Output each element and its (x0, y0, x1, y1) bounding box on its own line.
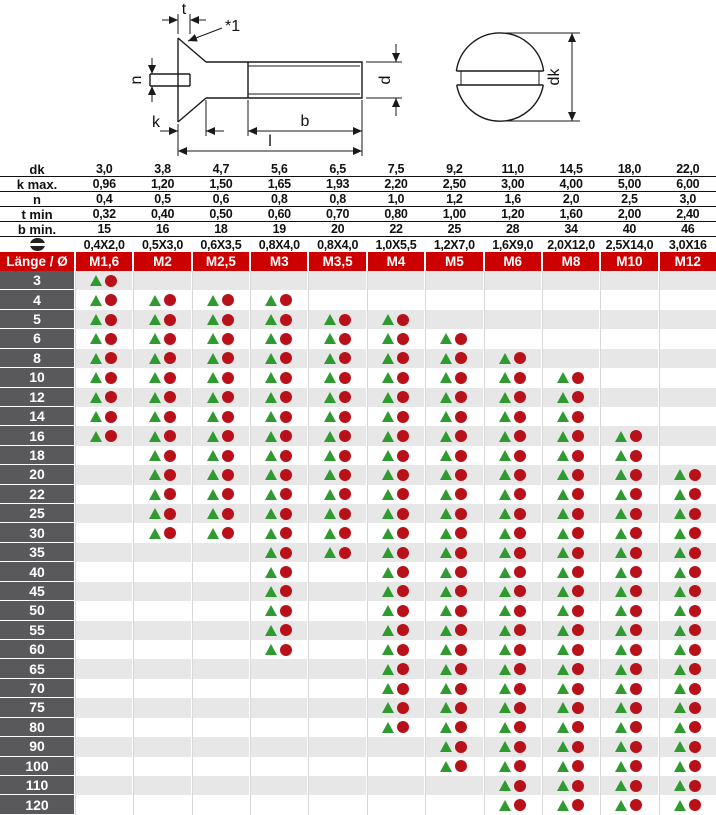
spec-value-b-min-M5: 25 (426, 222, 482, 236)
available-circle (514, 450, 526, 462)
cell-8-M2,5 (192, 349, 249, 368)
cell-120-M10 (600, 795, 657, 814)
cell-8-M2 (133, 349, 190, 368)
available-triangle (557, 392, 569, 403)
available-circle (280, 352, 292, 364)
available-circle (280, 585, 292, 597)
spec-value-dk-M6: 11,0 (485, 162, 541, 176)
cell-16-M6 (484, 426, 541, 445)
available-triangle (674, 683, 686, 694)
available-triangle (265, 528, 277, 539)
available-circle (455, 508, 467, 520)
spec-row-slot: 0,4X2,00,5X3,00,6X3,50,8X4,00,8X4,01,0X5… (0, 237, 716, 252)
dim-label-note1: *1 (225, 18, 240, 35)
cell-35-M5 (425, 543, 482, 562)
available-circle (164, 469, 176, 481)
spec-value-n-M10: 2,5 (601, 192, 657, 206)
cell-40-M4 (367, 562, 424, 581)
available-circle (572, 683, 584, 695)
technical-drawing: t *1 n k b (0, 0, 716, 162)
table-row-length-45: 45 (0, 582, 716, 601)
cell-80-M2,5 (192, 718, 249, 737)
spec-value-slot-M1,6: 0,4X2,0 (76, 237, 132, 252)
available-circle (514, 372, 526, 384)
available-triangle (149, 333, 161, 344)
available-triangle (265, 314, 277, 325)
available-circle (455, 566, 467, 578)
spec-value-t-min-M3,5: 0,70 (309, 207, 365, 221)
length-label-80: 80 (0, 718, 74, 737)
table-row-length-4: 4 (0, 290, 716, 309)
cell-5-M6 (484, 310, 541, 329)
available-triangle (499, 761, 511, 772)
cell-120-M4 (367, 795, 424, 814)
spec-value-b-min-M3,5: 20 (309, 222, 365, 236)
cell-30-M3 (250, 523, 307, 542)
cell-16-M1,6 (75, 426, 132, 445)
dim-label-k: k (152, 114, 161, 131)
available-circle (689, 663, 701, 675)
length-label-3: 3 (0, 271, 74, 290)
cell-4-M3,5 (308, 290, 365, 309)
cell-12-M8 (542, 388, 599, 407)
available-circle (514, 721, 526, 733)
available-triangle (615, 683, 627, 694)
available-circle (455, 547, 467, 559)
cell-100-M1,6 (75, 757, 132, 776)
cell-55-M6 (484, 621, 541, 640)
available-circle (280, 527, 292, 539)
cell-80-M4 (367, 718, 424, 737)
available-triangle (149, 392, 161, 403)
cell-30-M8 (542, 523, 599, 542)
available-triangle (557, 722, 569, 733)
available-triangle (440, 411, 452, 422)
cell-4-M1,6 (75, 290, 132, 309)
spec-value-k-max-M1,6: 0,96 (76, 177, 132, 191)
available-triangle (615, 761, 627, 772)
available-triangle (557, 664, 569, 675)
cell-20-M10 (600, 465, 657, 484)
cell-12-M3 (250, 388, 307, 407)
available-triangle (499, 702, 511, 713)
available-circle (339, 372, 351, 384)
spec-value-k-max-M2,5: 1,50 (193, 177, 249, 191)
available-circle (397, 372, 409, 384)
available-triangle (265, 567, 277, 578)
available-circle (572, 527, 584, 539)
cell-8-M5 (425, 349, 482, 368)
available-triangle (615, 722, 627, 733)
available-triangle (440, 508, 452, 519)
available-triangle (557, 683, 569, 694)
cell-40-M2 (133, 562, 190, 581)
spec-value-k-max-M3: 1,65 (251, 177, 307, 191)
available-circle (514, 585, 526, 597)
available-circle (689, 644, 701, 656)
available-triangle (149, 469, 161, 480)
available-triangle (382, 528, 394, 539)
available-triangle (557, 547, 569, 558)
available-triangle (499, 431, 511, 442)
available-triangle (90, 275, 102, 286)
available-circle (280, 314, 292, 326)
cell-22-M4 (367, 485, 424, 504)
spec-value-n-M2,5: 0,6 (193, 192, 249, 206)
cell-45-M10 (600, 582, 657, 601)
available-circle (339, 488, 351, 500)
cell-25-M5 (425, 504, 482, 523)
cell-110-M12 (659, 776, 716, 795)
cell-55-M10 (600, 621, 657, 640)
available-circle (572, 547, 584, 559)
cell-14-M12 (659, 407, 716, 426)
cell-10-M2 (133, 368, 190, 387)
spec-value-dk-M3: 5,6 (251, 162, 307, 176)
cell-6-M10 (600, 329, 657, 348)
spec-value-n-M8: 2,0 (543, 192, 599, 206)
cell-100-M2 (133, 757, 190, 776)
available-triangle (265, 411, 277, 422)
available-circle (514, 799, 526, 811)
cell-20-M4 (367, 465, 424, 484)
available-circle (689, 488, 701, 500)
available-circle (514, 683, 526, 695)
available-triangle (207, 508, 219, 519)
cell-35-M3,5 (308, 543, 365, 562)
cell-60-M6 (484, 640, 541, 659)
available-triangle (440, 702, 452, 713)
slot-screw-icon (30, 238, 45, 251)
cell-35-M6 (484, 543, 541, 562)
available-triangle (674, 741, 686, 752)
available-circle (630, 605, 642, 617)
available-circle (572, 644, 584, 656)
cell-25-M3,5 (308, 504, 365, 523)
size-header-M3: M3 (251, 252, 307, 271)
available-circle (105, 391, 117, 403)
cell-65-M12 (659, 659, 716, 678)
cell-18-M2 (133, 446, 190, 465)
table-row-length-30: 30 (0, 523, 716, 542)
cell-3-M3 (250, 271, 307, 290)
cell-70-M5 (425, 679, 482, 698)
available-triangle (382, 722, 394, 733)
spec-value-dk-M1,6: 3,0 (76, 162, 132, 176)
available-circle (280, 333, 292, 345)
cell-50-M2,5 (192, 601, 249, 620)
available-circle (455, 488, 467, 500)
table-row-length-12: 12 (0, 388, 716, 407)
available-triangle (324, 392, 336, 403)
cell-12-M2 (133, 388, 190, 407)
spec-value-t-min-M8: 1,60 (543, 207, 599, 221)
cell-30-M4 (367, 523, 424, 542)
spec-value-n-M4: 1,0 (368, 192, 424, 206)
cell-50-M3,5 (308, 601, 365, 620)
cell-75-M4 (367, 698, 424, 717)
available-triangle (615, 528, 627, 539)
available-circle (572, 450, 584, 462)
available-triangle (324, 489, 336, 500)
cell-6-M5 (425, 329, 482, 348)
length-label-120: 120 (0, 795, 74, 814)
cell-75-M12 (659, 698, 716, 717)
available-circle (455, 352, 467, 364)
available-circle (397, 624, 409, 636)
cell-3-M1,6 (75, 271, 132, 290)
available-triangle (557, 605, 569, 616)
available-triangle (382, 392, 394, 403)
cell-5-M1,6 (75, 310, 132, 329)
available-triangle (499, 450, 511, 461)
cell-75-M3 (250, 698, 307, 717)
available-triangle (324, 411, 336, 422)
available-circle (397, 683, 409, 695)
available-triangle (499, 392, 511, 403)
cell-3-M4 (367, 271, 424, 290)
length-label-12: 12 (0, 388, 74, 407)
cell-6-M4 (367, 329, 424, 348)
available-circle (339, 450, 351, 462)
available-triangle (440, 469, 452, 480)
cell-30-M10 (600, 523, 657, 542)
available-triangle (615, 508, 627, 519)
available-circle (280, 566, 292, 578)
cell-55-M3,5 (308, 621, 365, 640)
cell-40-M6 (484, 562, 541, 581)
cell-120-M3,5 (308, 795, 365, 814)
spec-row-label-b-min: b min. (0, 222, 74, 236)
cell-16-M12 (659, 426, 716, 445)
available-triangle (382, 508, 394, 519)
cell-4-M4 (367, 290, 424, 309)
available-triangle (324, 353, 336, 364)
cell-18-M4 (367, 446, 424, 465)
dim-label-l: l (268, 133, 272, 150)
cell-30-M5 (425, 523, 482, 542)
cell-8-M3 (250, 349, 307, 368)
available-circle (689, 585, 701, 597)
available-triangle (382, 372, 394, 383)
cell-40-M12 (659, 562, 716, 581)
spec-value-dk-M2,5: 4,7 (193, 162, 249, 176)
available-triangle (382, 431, 394, 442)
spec-value-k-max-M10: 5,00 (601, 177, 657, 191)
available-triangle (440, 547, 452, 558)
cell-45-M2,5 (192, 582, 249, 601)
cell-40-M3,5 (308, 562, 365, 581)
cell-25-M12 (659, 504, 716, 523)
dim-label-n: n (128, 76, 145, 85)
cell-110-M5 (425, 776, 482, 795)
cell-55-M2 (133, 621, 190, 640)
cell-35-M2 (133, 543, 190, 562)
table-row-length-18: 18 (0, 446, 716, 465)
available-triangle (557, 761, 569, 772)
spec-value-b-min-M2,5: 18 (193, 222, 249, 236)
cell-70-M4 (367, 679, 424, 698)
cell-70-M2 (133, 679, 190, 698)
available-triangle (90, 353, 102, 364)
available-circle (164, 333, 176, 345)
available-triangle (615, 644, 627, 655)
cell-65-M10 (600, 659, 657, 678)
length-label-22: 22 (0, 485, 74, 504)
available-circle (572, 508, 584, 520)
available-circle (572, 799, 584, 811)
cell-8-M6 (484, 349, 541, 368)
cell-80-M5 (425, 718, 482, 737)
spec-row-label-k-max: k max. (0, 177, 74, 191)
available-triangle (440, 683, 452, 694)
available-triangle (499, 780, 511, 791)
cell-80-M8 (542, 718, 599, 737)
table-row-length-16: 16 (0, 426, 716, 445)
length-label-75: 75 (0, 698, 74, 717)
available-circle (455, 605, 467, 617)
cell-90-M8 (542, 737, 599, 756)
available-circle (572, 624, 584, 636)
cell-5-M5 (425, 310, 482, 329)
cell-10-M3,5 (308, 368, 365, 387)
available-triangle (382, 664, 394, 675)
cell-100-M12 (659, 757, 716, 776)
available-circle (397, 508, 409, 520)
cell-90-M6 (484, 737, 541, 756)
cell-10-M12 (659, 368, 716, 387)
cell-12-M12 (659, 388, 716, 407)
available-triangle (265, 450, 277, 461)
cell-50-M4 (367, 601, 424, 620)
cell-35-M12 (659, 543, 716, 562)
available-circle (397, 644, 409, 656)
size-header-M4: M4 (368, 252, 424, 271)
available-triangle (615, 450, 627, 461)
available-circle (222, 488, 234, 500)
available-circle (105, 411, 117, 423)
cell-5-M4 (367, 310, 424, 329)
available-circle (572, 372, 584, 384)
available-triangle (499, 800, 511, 811)
available-circle (455, 391, 467, 403)
cell-80-M10 (600, 718, 657, 737)
cell-60-M3 (250, 640, 307, 659)
cell-60-M4 (367, 640, 424, 659)
cell-120-M12 (659, 795, 716, 814)
available-triangle (207, 431, 219, 442)
available-circle (630, 585, 642, 597)
available-circle (689, 508, 701, 520)
cell-65-M6 (484, 659, 541, 678)
cell-20-M8 (542, 465, 599, 484)
available-circle (280, 488, 292, 500)
cell-75-M2,5 (192, 698, 249, 717)
available-circle (222, 411, 234, 423)
available-circle (689, 760, 701, 772)
available-circle (397, 721, 409, 733)
available-triangle (674, 469, 686, 480)
available-circle (689, 547, 701, 559)
available-circle (689, 624, 701, 636)
available-circle (222, 430, 234, 442)
available-triangle (324, 333, 336, 344)
cell-65-M2 (133, 659, 190, 678)
cell-16-M8 (542, 426, 599, 445)
available-triangle (207, 411, 219, 422)
cell-40-M2,5 (192, 562, 249, 581)
spec-value-slot-M5: 1,2X7,0 (426, 237, 482, 252)
available-triangle (440, 567, 452, 578)
spec-value-t-min-M2: 0,40 (134, 207, 190, 221)
available-triangle (499, 508, 511, 519)
available-circle (630, 469, 642, 481)
cell-50-M8 (542, 601, 599, 620)
available-triangle (557, 586, 569, 597)
cell-25-M10 (600, 504, 657, 523)
spec-value-slot-M4: 1,0X5,5 (368, 237, 424, 252)
cell-3-M2 (133, 271, 190, 290)
available-triangle (615, 800, 627, 811)
cell-10-M6 (484, 368, 541, 387)
cell-4-M6 (484, 290, 541, 309)
cell-75-M10 (600, 698, 657, 717)
available-circle (572, 605, 584, 617)
available-circle (164, 352, 176, 364)
cell-4-M5 (425, 290, 482, 309)
available-triangle (674, 528, 686, 539)
available-triangle (674, 800, 686, 811)
available-circle (222, 450, 234, 462)
available-circle (514, 644, 526, 656)
available-triangle (440, 431, 452, 442)
available-circle (164, 314, 176, 326)
size-header-M1,6: M1,6 (76, 252, 132, 271)
spec-value-k-max-M6: 3,00 (485, 177, 541, 191)
available-triangle (265, 392, 277, 403)
available-triangle (440, 644, 452, 655)
cell-40-M5 (425, 562, 482, 581)
spec-row-label-dk: dk (0, 162, 74, 176)
size-header-M8: M8 (543, 252, 599, 271)
available-triangle (615, 469, 627, 480)
length-label-30: 30 (0, 523, 74, 542)
length-diameter-header: Länge / Ø (0, 252, 74, 271)
available-circle (689, 799, 701, 811)
available-circle (397, 333, 409, 345)
available-circle (164, 430, 176, 442)
available-circle (514, 469, 526, 481)
available-triangle (265, 605, 277, 616)
available-circle (514, 702, 526, 714)
spec-row-label-n: n (0, 192, 74, 206)
cell-6-M3,5 (308, 329, 365, 348)
available-triangle (674, 625, 686, 636)
spec-value-k-max-M5: 2,50 (426, 177, 482, 191)
available-circle (514, 430, 526, 442)
cell-50-M12 (659, 601, 716, 620)
available-circle (339, 469, 351, 481)
cell-100-M2,5 (192, 757, 249, 776)
available-circle (339, 391, 351, 403)
available-circle (339, 508, 351, 520)
spec-value-slot-M12: 3,0X16 (660, 237, 716, 252)
cell-90-M2 (133, 737, 190, 756)
cell-110-M6 (484, 776, 541, 795)
available-triangle (207, 353, 219, 364)
length-label-110: 110 (0, 776, 74, 795)
available-circle (514, 352, 526, 364)
